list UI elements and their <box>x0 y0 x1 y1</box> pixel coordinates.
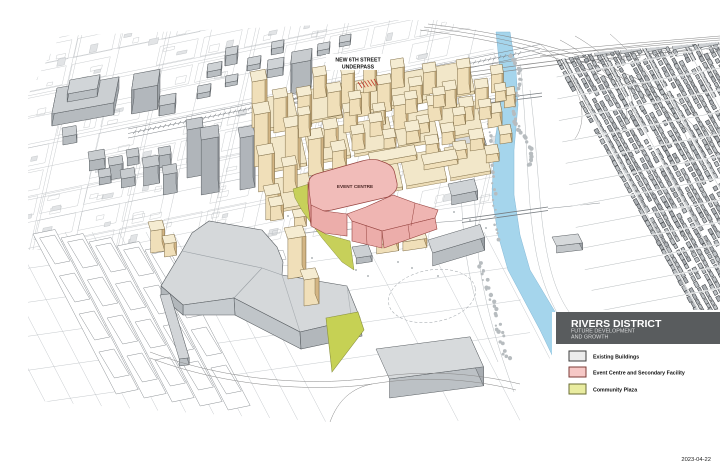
svg-text:Event Centre and Secondary Fac: Event Centre and Secondary Facility <box>593 371 685 377</box>
svg-text:UNDERPASS: UNDERPASS <box>342 65 375 71</box>
svg-text:Community Plaza: Community Plaza <box>593 388 637 394</box>
svg-text:2023-04-22: 2023-04-22 <box>681 457 711 463</box>
svg-text:Existing Buildings: Existing Buildings <box>593 355 639 361</box>
svg-text:EVENT CENTRE: EVENT CENTRE <box>337 184 373 189</box>
svg-text:NEW 6TH STREET: NEW 6TH STREET <box>335 58 381 64</box>
svg-text:AND GROWTH: AND GROWTH <box>571 335 609 341</box>
